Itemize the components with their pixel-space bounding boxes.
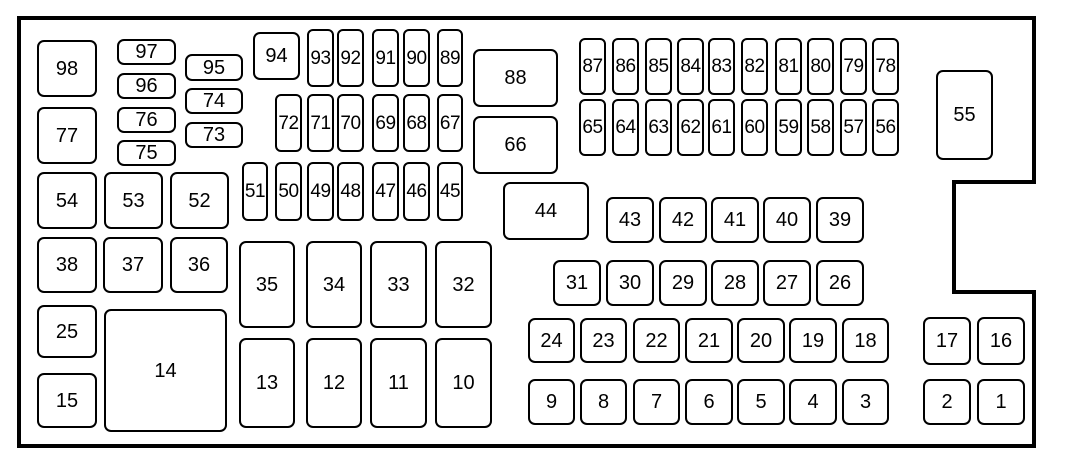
fuse-box-81: 81: [775, 38, 802, 95]
fuse-box-67: 67: [437, 94, 463, 152]
fuse-box-13: 13: [239, 338, 295, 428]
fuse-box-23: 23: [580, 318, 627, 363]
fuse-box-58: 58: [807, 99, 834, 156]
fuse-box-30: 30: [606, 260, 654, 306]
fuse-box-73: 73: [185, 122, 243, 148]
fuse-box-96: 96: [117, 73, 176, 99]
fuse-box-12: 12: [306, 338, 362, 428]
fuse-box-33: 33: [370, 241, 427, 328]
fuse-box-60: 60: [741, 99, 768, 156]
fuse-box-2: 2: [923, 379, 971, 425]
fuse-box-53: 53: [104, 172, 163, 229]
fuse-box-87: 87: [579, 38, 606, 95]
fuse-box-59: 59: [775, 99, 802, 156]
fuse-box-25: 25: [37, 305, 97, 358]
fuse-box-74: 74: [185, 88, 243, 114]
fuse-box-49: 49: [307, 162, 334, 221]
fuse-box-84: 84: [677, 38, 704, 95]
fuse-box-85: 85: [645, 38, 672, 95]
fuse-box-72: 72: [275, 94, 302, 152]
fuse-box-9: 9: [528, 379, 575, 425]
fuse-box-5: 5: [737, 379, 785, 425]
fuse-box-95: 95: [185, 54, 243, 81]
fuse-box-14: 14: [104, 309, 227, 432]
fuse-box-41: 41: [711, 197, 759, 243]
fuse-box-65: 65: [579, 99, 606, 156]
fuse-box-70: 70: [337, 94, 364, 152]
fuse-box-7: 7: [633, 379, 680, 425]
fuse-box-28: 28: [711, 260, 759, 306]
fuse-box-31: 31: [553, 260, 601, 306]
fuse-box-64: 64: [612, 99, 639, 156]
fuse-box-47: 47: [372, 162, 399, 221]
fuse-box-48: 48: [337, 162, 364, 221]
fuse-box-76: 76: [117, 107, 176, 133]
fuse-box-54: 54: [37, 172, 97, 229]
fuse-box-80: 80: [807, 38, 834, 95]
fuse-box-46: 46: [403, 162, 430, 221]
fuse-box-98: 98: [37, 40, 97, 97]
fuse-box-97: 97: [117, 39, 176, 65]
fuse-box-86: 86: [612, 38, 639, 95]
fuse-box-37: 37: [103, 237, 163, 293]
fuse-box-57: 57: [840, 99, 867, 156]
fuse-box-20: 20: [737, 318, 785, 363]
fuse-box-34: 34: [306, 241, 362, 328]
fuse-box-89: 89: [437, 29, 463, 87]
fuse-box-75: 75: [117, 140, 176, 166]
fuse-box-90: 90: [403, 29, 430, 87]
fuse-box-40: 40: [763, 197, 811, 243]
fuse-box-62: 62: [677, 99, 704, 156]
fuse-box-44: 44: [503, 182, 589, 240]
fuse-box-35: 35: [239, 241, 295, 328]
fuse-box-24: 24: [528, 318, 575, 363]
fuse-box-66: 66: [473, 116, 558, 174]
fuse-box-19: 19: [789, 318, 837, 363]
fuse-box-11: 11: [370, 338, 427, 428]
fuse-box-15: 15: [37, 373, 97, 428]
fuse-box-29: 29: [659, 260, 707, 306]
fuse-box-38: 38: [37, 237, 97, 293]
fuse-box-55: 55: [936, 70, 993, 160]
fuse-box-93: 93: [307, 29, 334, 87]
fuse-box-6: 6: [685, 379, 733, 425]
fuse-box-71: 71: [307, 94, 334, 152]
fuse-box-91: 91: [372, 29, 399, 87]
fuse-box-21: 21: [685, 318, 733, 363]
fuse-box-43: 43: [606, 197, 654, 243]
fuse-box-32: 32: [435, 241, 492, 328]
fuse-box-78: 78: [872, 38, 899, 95]
fuse-panel-diagram: 9897967675957473779493929190898887868584…: [0, 0, 1071, 472]
fuse-box-94: 94: [253, 32, 300, 80]
fuse-box-79: 79: [840, 38, 867, 95]
fuse-box-17: 17: [923, 317, 971, 365]
fuse-box-39: 39: [816, 197, 864, 243]
fuse-box-36: 36: [170, 237, 228, 293]
fuse-box-68: 68: [403, 94, 430, 152]
fuse-box-8: 8: [580, 379, 627, 425]
fuse-box-45: 45: [437, 162, 463, 221]
fuse-box-18: 18: [842, 318, 889, 363]
fuse-box-82: 82: [741, 38, 768, 95]
fuse-box-77: 77: [37, 107, 97, 164]
fuse-box-69: 69: [372, 94, 399, 152]
fuse-box-51: 51: [242, 162, 268, 221]
fuse-box-52: 52: [170, 172, 229, 229]
fuse-box-42: 42: [659, 197, 707, 243]
fuse-box-61: 61: [708, 99, 735, 156]
fuse-box-1: 1: [977, 379, 1025, 425]
fuse-box-10: 10: [435, 338, 492, 428]
fuse-box-88: 88: [473, 49, 558, 107]
fuse-box-26: 26: [816, 260, 864, 306]
fuse-box-16: 16: [977, 317, 1025, 365]
fuse-box-3: 3: [842, 379, 889, 425]
fuse-box-92: 92: [337, 29, 364, 87]
fuse-box-4: 4: [789, 379, 837, 425]
fuse-box-56: 56: [872, 99, 899, 156]
fuse-box-50: 50: [275, 162, 302, 221]
fuse-box-83: 83: [708, 38, 735, 95]
fuse-box-63: 63: [645, 99, 672, 156]
fuse-box-27: 27: [763, 260, 811, 306]
fuse-box-22: 22: [633, 318, 680, 363]
